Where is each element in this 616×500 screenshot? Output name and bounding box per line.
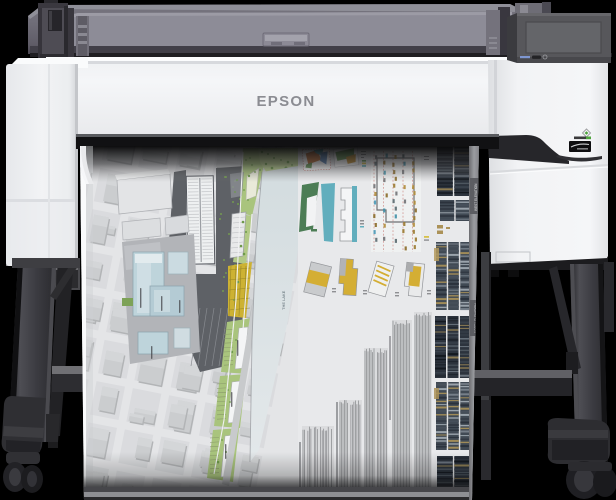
svg-text:WEST ELEVATION: WEST ELEVATION — [474, 183, 478, 211]
svg-text:THE LAKE: THE LAKE — [281, 290, 286, 310]
svg-text:EPSON: EPSON — [256, 93, 315, 110]
